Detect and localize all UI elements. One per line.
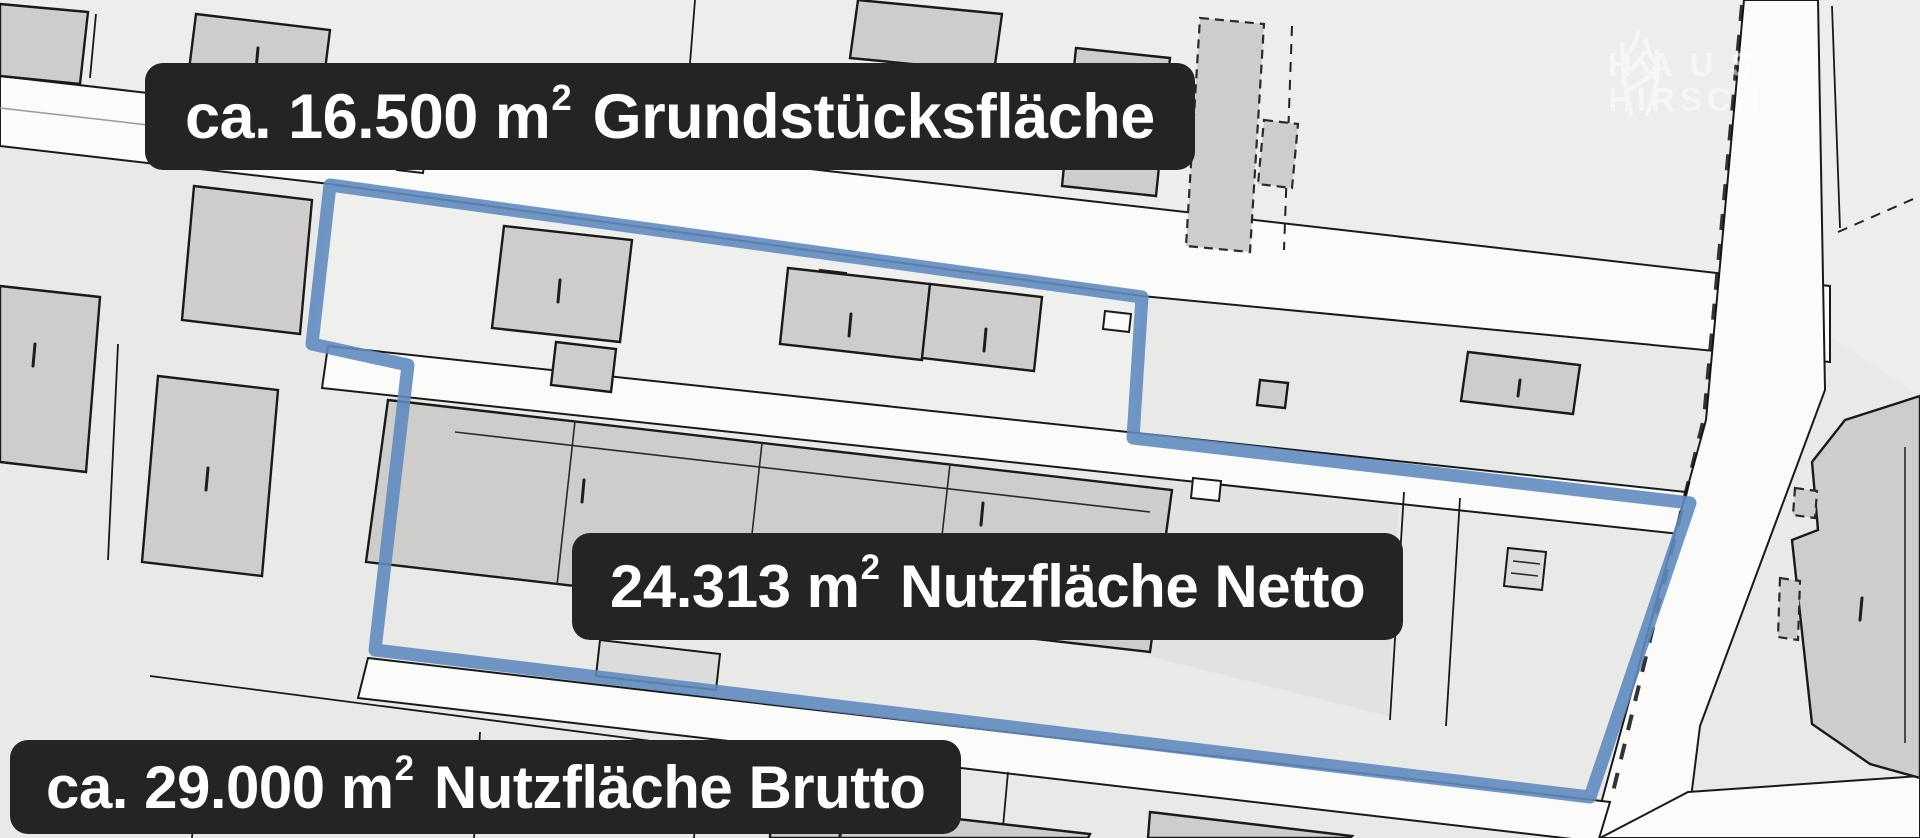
building-dashed (1258, 120, 1298, 188)
building-symbol-square (1504, 548, 1546, 590)
squared-superscript: 2 (395, 749, 414, 789)
building (142, 376, 278, 576)
road-notch (1103, 311, 1131, 332)
plot-area-value: ca. 16.500 m (185, 81, 550, 153)
antlers-icon (1598, 26, 1678, 118)
net-area-name: Nutzfläche Netto (900, 552, 1365, 621)
building (0, 4, 88, 84)
building (492, 226, 632, 342)
building (922, 284, 1042, 371)
building (0, 286, 100, 472)
gross-area-name: Nutzfläche Brutto (434, 753, 925, 822)
haus-hirsch-logo: HAUS HIRSCH (1598, 26, 1770, 117)
squared-superscript: 2 (551, 77, 571, 119)
building (182, 186, 312, 334)
site-plan-screenshot: ca. 16.500 m2Grundstücksfläche 24.313 m2… (0, 0, 1920, 838)
squared-superscript: 2 (861, 548, 880, 588)
road-notch (1191, 478, 1221, 501)
gross-usable-area-label: ca. 29.000 m2Nutzfläche Brutto (10, 740, 961, 834)
building (850, 0, 1002, 72)
net-area-value: 24.313 m (610, 552, 860, 621)
plot-area-label: ca. 16.500 m2Grundstücksfläche (145, 63, 1195, 170)
plot-area-name: Grundstücksfläche (593, 81, 1155, 153)
gross-area-value: ca. 29.000 m (46, 753, 394, 822)
building-dashed (1778, 578, 1800, 640)
building (551, 342, 616, 392)
building (1257, 380, 1288, 408)
building (780, 268, 930, 360)
net-usable-area-label: 24.313 m2Nutzfläche Netto (572, 533, 1403, 640)
building-dashed (1793, 488, 1817, 518)
